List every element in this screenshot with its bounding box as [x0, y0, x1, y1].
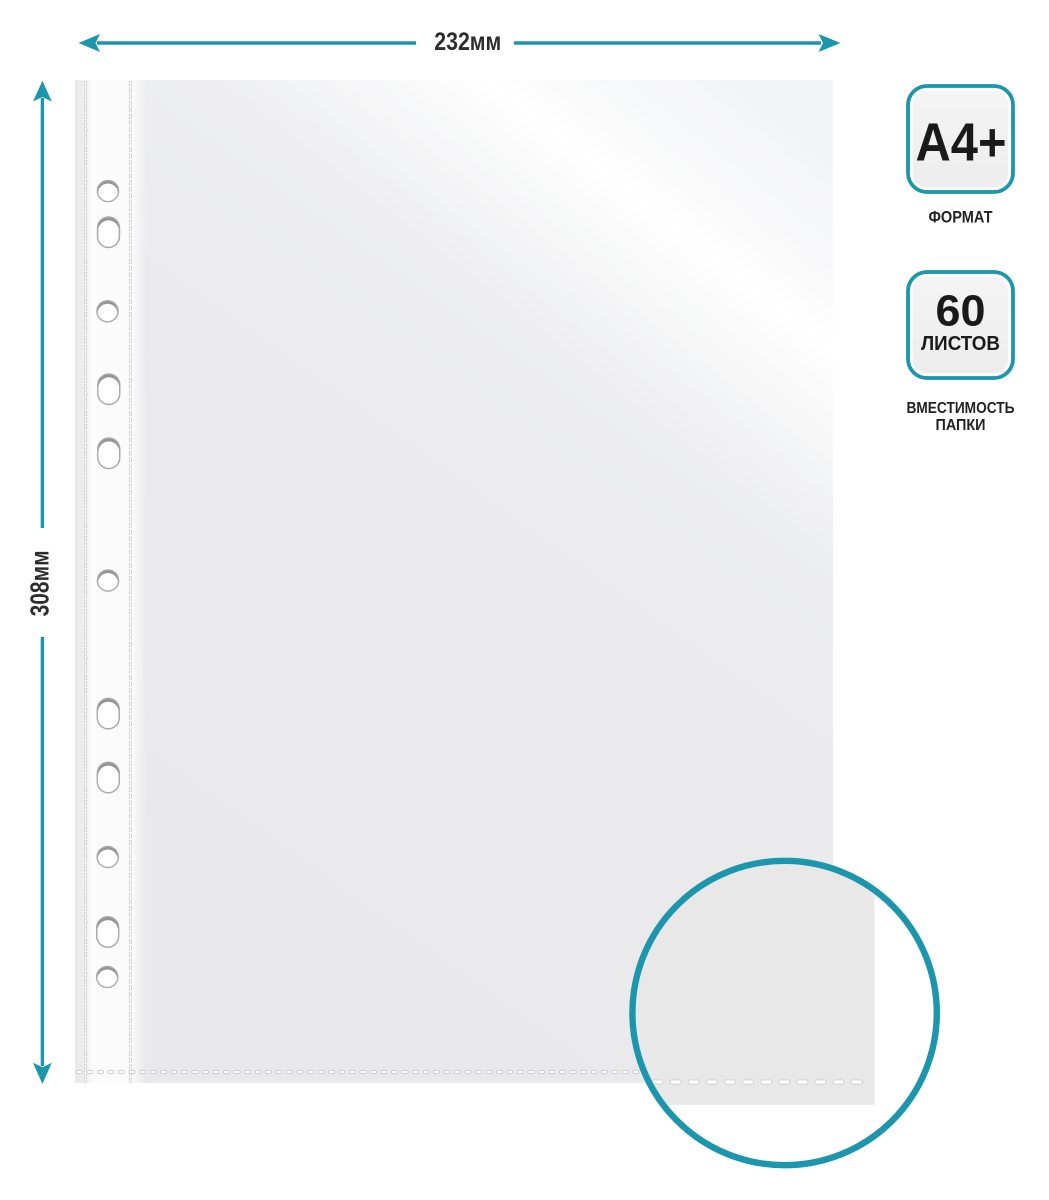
svg-text:ФОРМАТ: ФОРМАТ: [929, 208, 994, 227]
svg-text:A4+: A4+: [916, 113, 1007, 173]
svg-text:ЛИСТОВ: ЛИСТОВ: [921, 332, 1000, 355]
svg-text:ПАПКИ: ПАПКИ: [936, 417, 986, 434]
svg-text:60: 60: [936, 287, 986, 335]
svg-text:232мм: 232мм: [434, 28, 501, 56]
svg-text:ВМЕСТИМОСТЬ: ВМЕСТИМОСТЬ: [907, 400, 1015, 417]
svg-text:308мм: 308мм: [25, 550, 55, 616]
